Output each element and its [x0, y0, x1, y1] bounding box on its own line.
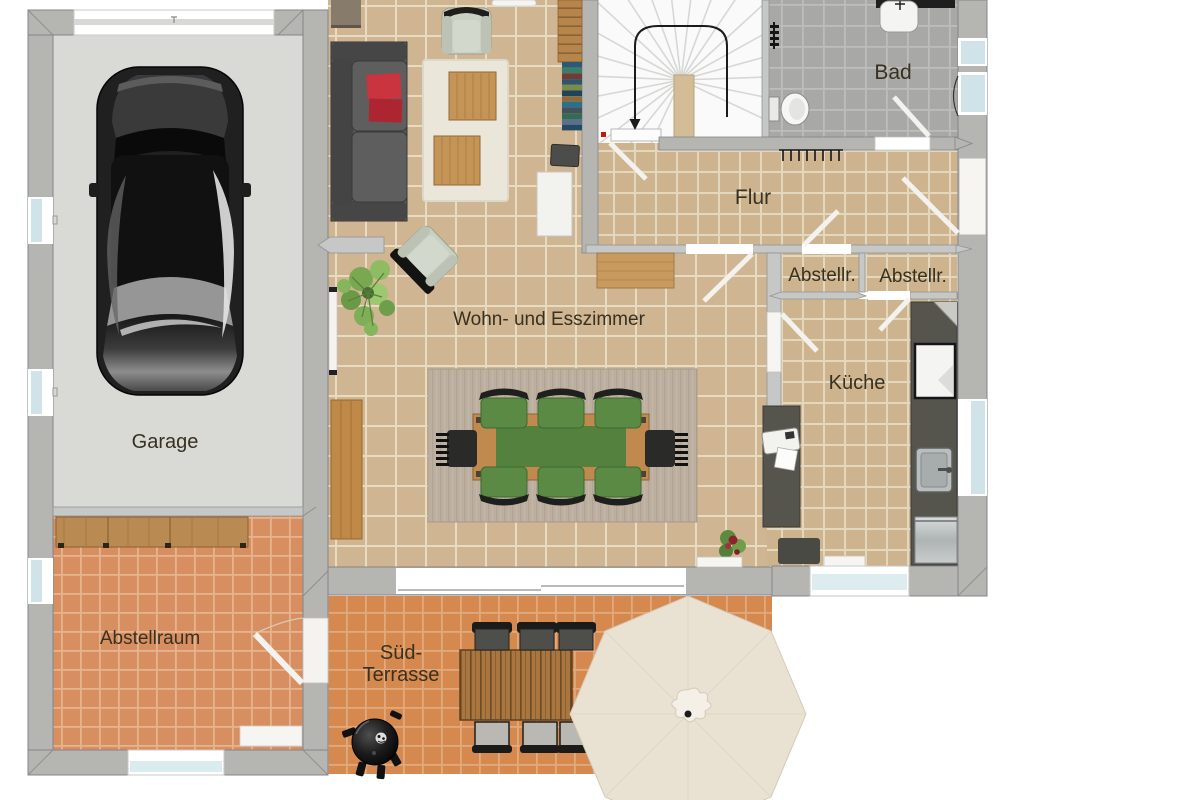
- svg-text:Flur: Flur: [735, 186, 771, 209]
- svg-text:Abstellr.: Abstellr.: [788, 265, 856, 286]
- svg-text:Süd-: Süd-: [380, 642, 422, 664]
- svg-text:Abstellraum: Abstellraum: [100, 628, 200, 649]
- svg-text:Terrasse: Terrasse: [363, 664, 440, 686]
- svg-text:Abstellr.: Abstellr.: [879, 266, 947, 287]
- svg-text:Bad: Bad: [874, 61, 911, 84]
- svg-text:Garage: Garage: [132, 431, 199, 453]
- svg-text:Wohn- und Esszimmer: Wohn- und Esszimmer: [453, 309, 645, 330]
- svg-text:Küche: Küche: [829, 372, 886, 394]
